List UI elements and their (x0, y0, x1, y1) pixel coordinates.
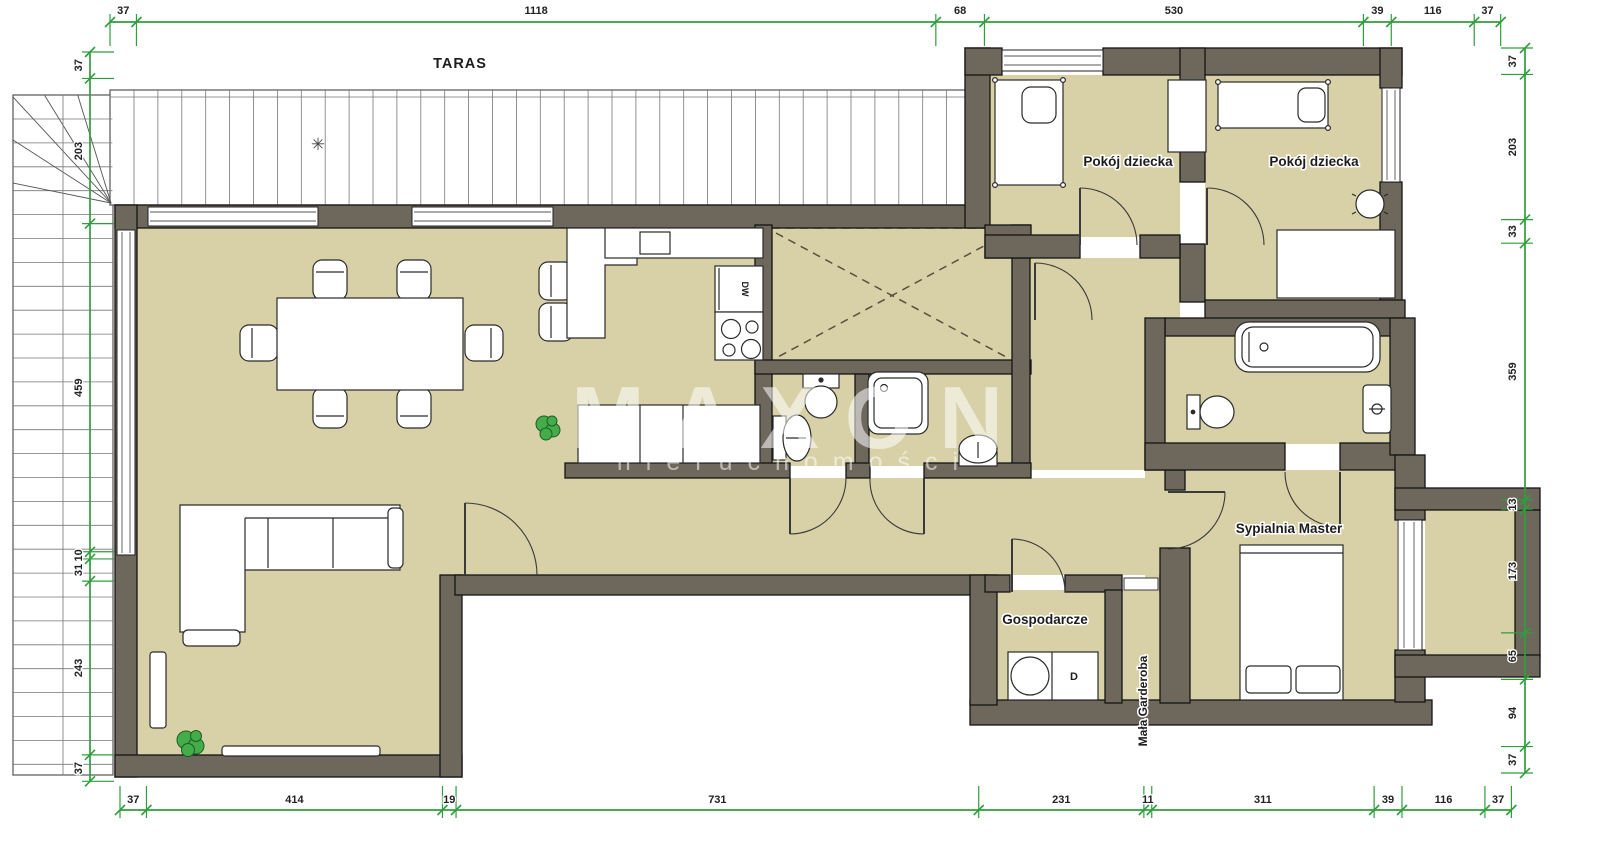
wardrobe-2 (1277, 230, 1395, 298)
dim-label: 33 (1507, 225, 1519, 237)
master-sink (1363, 385, 1391, 433)
dim-label: 116 (1424, 5, 1442, 17)
dim-label: 39 (1382, 794, 1394, 806)
laundry-units (1008, 652, 1098, 700)
sofa-armrest (183, 630, 240, 646)
dim-label: 37 (1492, 794, 1504, 806)
watermark-secondary: nieruchomości (617, 448, 973, 476)
window-kids-2 (1382, 88, 1400, 182)
window-master (1398, 520, 1422, 650)
dim-label: 311 (1254, 794, 1272, 806)
room-label-master: Sypialnia Master (1236, 521, 1343, 536)
pillow (1022, 87, 1056, 123)
oven (640, 232, 670, 254)
pillow (1298, 88, 1325, 122)
dim-label: 116 (1435, 794, 1453, 806)
master-toilet (1187, 395, 1234, 429)
dim-label: 37 (1481, 5, 1493, 17)
dim-label: 203 (1507, 138, 1519, 156)
burner (723, 344, 735, 356)
dim-label: 68 (954, 5, 966, 17)
window-living-1 (148, 207, 318, 226)
dim-label: 459 (73, 379, 85, 397)
dim-label: 31 (73, 564, 85, 576)
burner (742, 340, 761, 359)
radiator (150, 652, 166, 728)
dim-label: 530 (1165, 5, 1183, 17)
dim-label: 414 (285, 794, 304, 806)
room-label-kids-2: Pokój dziecka (1269, 154, 1359, 169)
dim-chain-top: 371118685303911637 (105, 5, 1506, 46)
floor-plan: TARAS ✳ (0, 0, 1600, 849)
dim-label: 731 (708, 794, 726, 806)
dim-label: 37 (117, 5, 129, 17)
bathtub (1235, 322, 1380, 372)
dim-label: 94 (1507, 706, 1519, 719)
dim-label: 203 (73, 142, 85, 160)
dim-label: 173 (1507, 562, 1519, 580)
terrace-label: TARAS (433, 56, 487, 72)
dryer-label: D (1070, 671, 1078, 683)
floor-plan-page: TARAS ✳ (0, 0, 1600, 849)
dishwasher (715, 266, 763, 312)
tv-console (222, 746, 380, 756)
dim-label: 65 (1507, 650, 1519, 662)
dim-label: 39 (1371, 5, 1383, 17)
dim-label: 10 (73, 549, 85, 561)
dim-label: 37 (127, 794, 139, 806)
pillow (1246, 666, 1291, 693)
burner (746, 321, 758, 333)
dim-chain-bottom: 3741419731231113113911637 (115, 786, 1516, 818)
washer (1011, 657, 1049, 695)
dim-label: 37 (1507, 754, 1519, 766)
pillow (1296, 666, 1340, 693)
room-label-kids-1: Pokój dziecka (1083, 154, 1173, 169)
terrace-star-icon: ✳ (311, 135, 325, 154)
burner (722, 320, 741, 339)
dining-table (277, 298, 463, 390)
room-label-gospodarcze: Gospodarcze (1002, 612, 1088, 627)
kids-bed-2 (1216, 80, 1331, 131)
dim-label: 19 (443, 794, 455, 806)
window-living-2 (412, 207, 553, 226)
dim-label: 231 (1052, 794, 1070, 806)
door-garderoba (1124, 578, 1158, 590)
dim-label: 37 (73, 59, 85, 71)
dim-label: 11 (1142, 794, 1154, 806)
dim-label: 1118 (525, 5, 548, 17)
dishwasher-label: DW (740, 282, 750, 297)
dim-label: 243 (73, 659, 85, 677)
window-kids-1 (1002, 50, 1103, 71)
room-label-garderoba: Mała Garderoba (1136, 655, 1150, 746)
master-bed (1240, 545, 1343, 700)
sofa-armrest (388, 508, 403, 568)
window-living-side (117, 230, 135, 555)
dim-label: 37 (73, 762, 85, 774)
watermark: MAXON nieruchomości (571, 368, 1029, 476)
kids-bed-1 (993, 78, 1066, 188)
kitchen-counter-top (605, 228, 763, 258)
dim-label: 359 (1507, 362, 1519, 380)
dim-label: 37 (1507, 55, 1519, 67)
wardrobe-1 (1168, 80, 1206, 152)
dim-label: 13 (1507, 498, 1519, 510)
